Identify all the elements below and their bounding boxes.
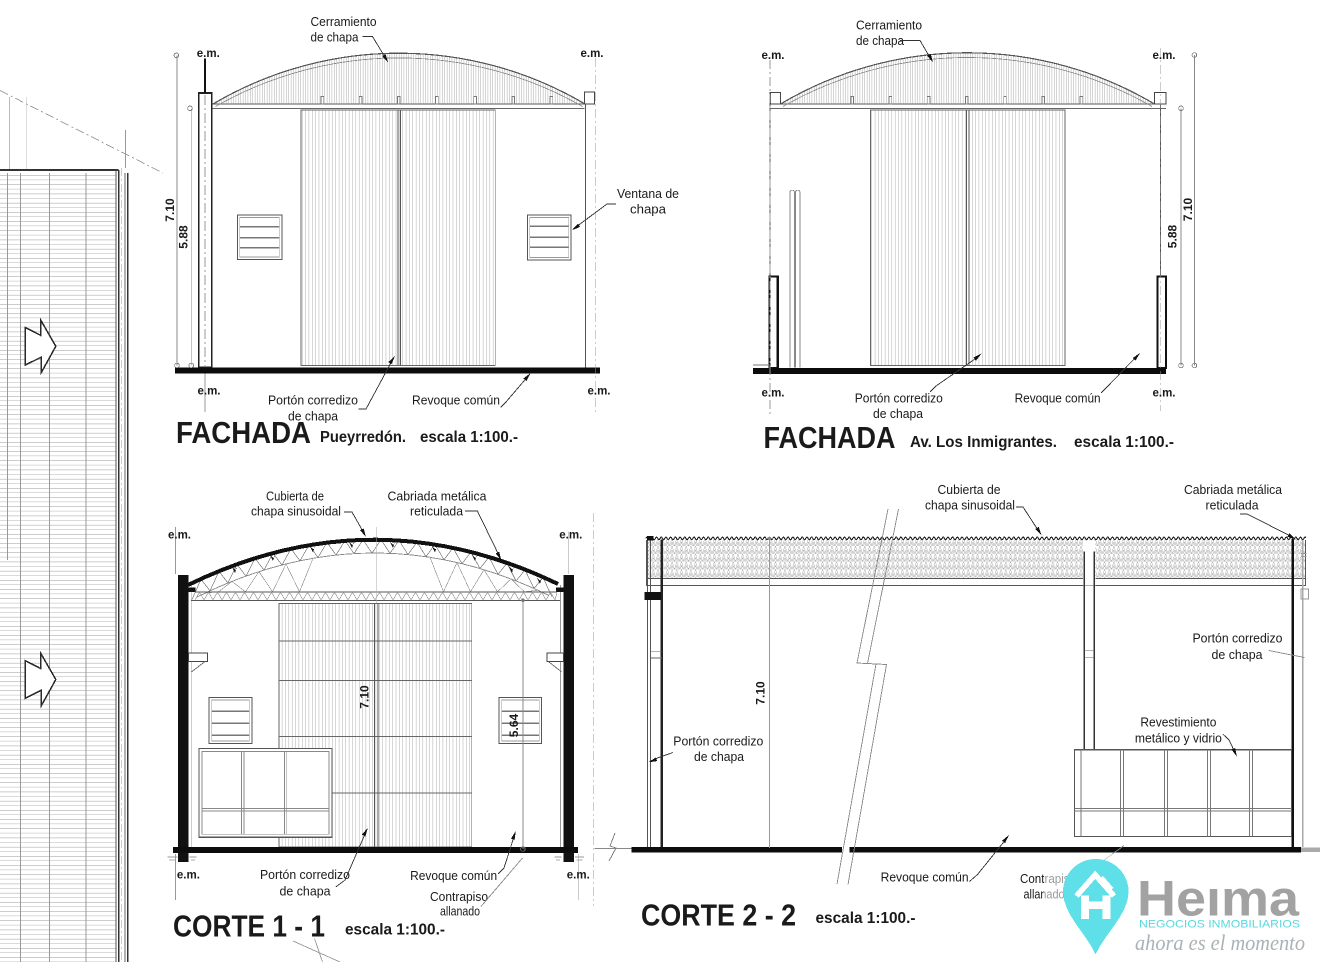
svg-text:escala 1:100.-: escala 1:100.- — [345, 922, 445, 939]
svg-text:Revoque común: Revoque común — [1015, 391, 1101, 406]
svg-text:de chapa: de chapa — [856, 33, 905, 48]
svg-text:Cabriada metálica: Cabriada metálica — [388, 489, 488, 504]
svg-text:Portón corredizo: Portón corredizo — [1193, 631, 1283, 646]
svg-text:7.10: 7.10 — [754, 681, 768, 705]
svg-text:de chapa: de chapa — [1212, 647, 1264, 662]
svg-text:Revestimiento: Revestimiento — [1140, 715, 1216, 730]
svg-text:allanado: allanado — [440, 904, 480, 919]
svg-text:FACHADA: FACHADA — [176, 415, 311, 450]
svg-text:de chapa: de chapa — [873, 406, 924, 421]
svg-text:Cubierta de: Cubierta de — [266, 489, 324, 504]
svg-text:e.m.: e.m. — [567, 870, 590, 882]
svg-text:Av. Los Inmigrantes.: Av. Los Inmigrantes. — [910, 434, 1057, 451]
svg-text:5.88: 5.88 — [177, 225, 191, 249]
svg-text:de chapa: de chapa — [694, 749, 745, 764]
svg-text:Cerramiento: Cerramiento — [311, 14, 377, 29]
svg-text:Contrapiso: Contrapiso — [430, 889, 488, 904]
svg-text:reticulada: reticulada — [410, 504, 464, 519]
svg-text:e.m.: e.m. — [197, 386, 220, 398]
svg-text:Revoque común: Revoque común — [881, 870, 969, 885]
svg-text:NEGOCIOS INMOBILIARIOS: NEGOCIOS INMOBILIARIOS — [1139, 919, 1300, 931]
svg-text:e.m.: e.m. — [587, 386, 610, 398]
svg-text:Portón corredizo: Portón corredizo — [268, 393, 358, 408]
svg-text:ahora es el momento: ahora es el momento — [1135, 930, 1305, 955]
svg-text:Portón corredizo: Portón corredizo — [260, 867, 350, 882]
svg-text:de chapa: de chapa — [280, 884, 332, 899]
svg-text:e.m.: e.m. — [761, 50, 784, 62]
svg-text:e.m.: e.m. — [1152, 50, 1175, 62]
svg-text:metálico y vidrio: metálico y vidrio — [1135, 731, 1222, 746]
svg-text:7.10: 7.10 — [1181, 197, 1195, 221]
svg-text:Pueyrredón.: Pueyrredón. — [320, 429, 406, 446]
svg-text:chapa sinusoidal: chapa sinusoidal — [251, 504, 341, 519]
svg-text:escala 1:100.-: escala 1:100.- — [816, 910, 916, 927]
svg-text:reticulada: reticulada — [1206, 498, 1260, 513]
svg-text:Cerramiento: Cerramiento — [856, 18, 922, 33]
svg-text:Portón corredizo: Portón corredizo — [673, 734, 763, 749]
svg-text:5.88: 5.88 — [1166, 224, 1180, 248]
svg-text:e.m.: e.m. — [1152, 388, 1175, 400]
svg-text:e.m.: e.m. — [197, 48, 220, 60]
svg-text:e.m.: e.m. — [168, 530, 191, 542]
svg-text:chapa sinusoidal: chapa sinusoidal — [925, 498, 1015, 513]
svg-text:e.m.: e.m. — [761, 388, 784, 400]
svg-text:Revoque común: Revoque común — [412, 393, 500, 408]
svg-text:Portón corredizo: Portón corredizo — [855, 391, 943, 406]
svg-text:5.64: 5.64 — [507, 713, 521, 737]
svg-text:escala 1:100.-: escala 1:100.- — [420, 429, 518, 446]
svg-text:escala 1:100.-: escala 1:100.- — [1074, 434, 1174, 451]
svg-text:CORTE 2 - 2: CORTE 2 - 2 — [641, 898, 796, 933]
svg-text:7.10: 7.10 — [358, 685, 372, 709]
svg-text:CORTE 1 - 1: CORTE 1 - 1 — [173, 909, 325, 944]
svg-text:e.m.: e.m. — [580, 48, 603, 60]
svg-text:7.10: 7.10 — [163, 198, 177, 222]
svg-text:e.m.: e.m. — [559, 530, 582, 542]
svg-text:Ventana de: Ventana de — [617, 186, 679, 201]
svg-text:Cabriada metálica: Cabriada metálica — [1184, 482, 1283, 497]
svg-text:e.m.: e.m. — [177, 870, 200, 882]
svg-text:Revoque común: Revoque común — [410, 868, 497, 883]
svg-text:chapa: chapa — [630, 202, 667, 217]
svg-text:de chapa: de chapa — [311, 29, 360, 44]
svg-text:FACHADA: FACHADA — [764, 420, 896, 455]
svg-text:Cubierta de: Cubierta de — [938, 482, 1001, 497]
